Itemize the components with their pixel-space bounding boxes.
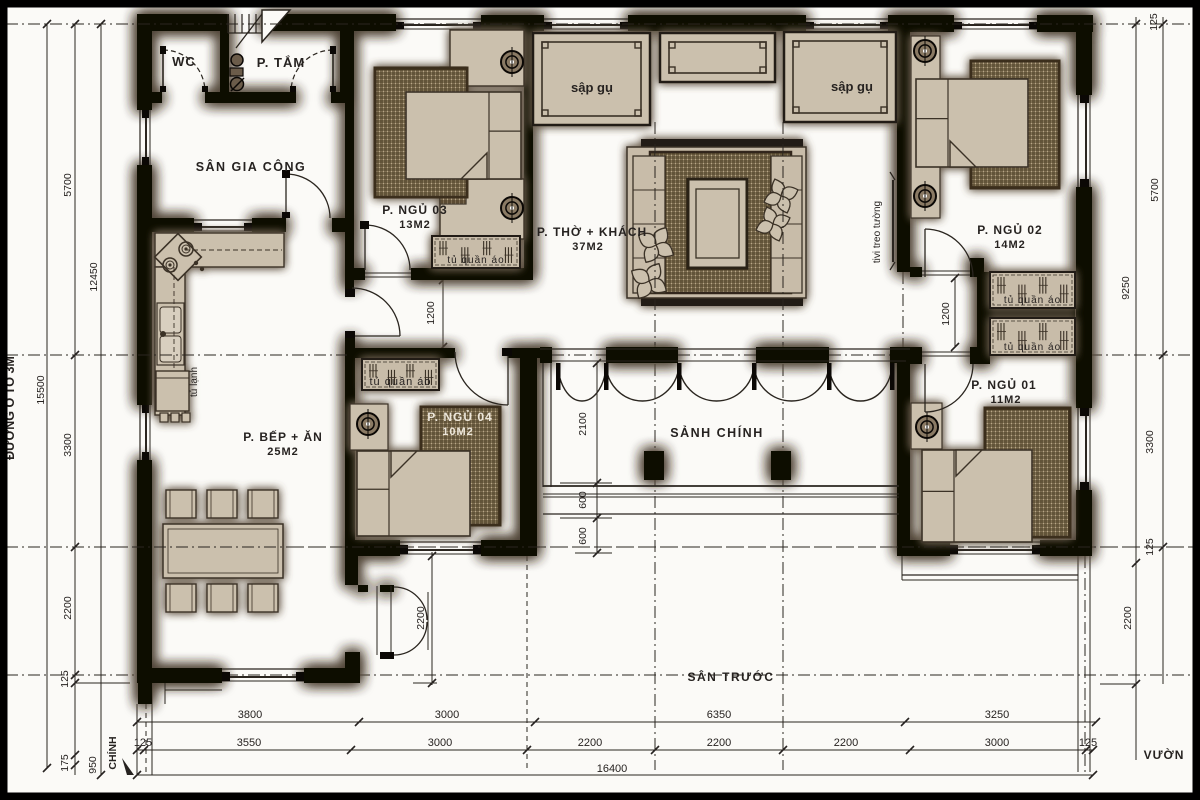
svg-text:3250: 3250 <box>985 709 1009 721</box>
svg-text:5700: 5700 <box>1149 178 1161 202</box>
svg-text:10M2: 10M2 <box>442 426 474 438</box>
svg-text:5700: 5700 <box>62 173 74 197</box>
svg-text:3300: 3300 <box>62 433 74 457</box>
svg-text:tủ quần áo: tủ quần áo <box>370 376 432 388</box>
svg-text:tủ quần áo: tủ quần áo <box>1004 341 1061 353</box>
svg-text:tủ quần áo: tủ quần áo <box>447 254 504 266</box>
svg-text:tủ lạnh: tủ lạnh <box>188 367 200 397</box>
svg-text:11M2: 11M2 <box>991 394 1022 406</box>
svg-text:3550: 3550 <box>237 737 261 749</box>
svg-text:125: 125 <box>59 670 71 688</box>
svg-text:P. NGỦ 01: P. NGỦ 01 <box>971 377 1036 392</box>
svg-text:37M2: 37M2 <box>572 241 604 253</box>
svg-text:2100: 2100 <box>577 412 589 436</box>
svg-text:950: 950 <box>87 756 99 774</box>
svg-text:6350: 6350 <box>707 709 731 721</box>
svg-text:12450: 12450 <box>88 262 100 291</box>
svg-text:25M2: 25M2 <box>267 446 299 458</box>
svg-text:sập gụ: sập gụ <box>831 79 873 94</box>
svg-text:175: 175 <box>59 754 71 772</box>
svg-text:P. BẾP + ĂN: P. BẾP + ĂN <box>243 429 323 444</box>
svg-text:VƯỜN: VƯỜN <box>1144 747 1185 762</box>
svg-text:SÂN TRƯỚC: SÂN TRƯỚC <box>687 669 774 684</box>
svg-text:125: 125 <box>1144 538 1156 556</box>
svg-text:2200: 2200 <box>62 596 74 620</box>
svg-text:3000: 3000 <box>985 737 1009 749</box>
svg-text:15500: 15500 <box>35 375 47 404</box>
svg-text:125: 125 <box>134 737 152 749</box>
svg-text:2200: 2200 <box>1122 606 1134 630</box>
svg-text:16400: 16400 <box>597 763 628 775</box>
svg-text:SÂN GIA CÔNG: SÂN GIA CÔNG <box>196 159 307 174</box>
svg-text:1200: 1200 <box>940 302 952 326</box>
svg-text:125: 125 <box>1148 13 1160 31</box>
svg-text:CHÍNH: CHÍNH <box>106 736 119 769</box>
svg-text:9250: 9250 <box>1120 276 1132 300</box>
svg-text:3000: 3000 <box>428 737 452 749</box>
svg-text:2200: 2200 <box>415 606 427 630</box>
svg-text:P. NGỦ 02: P. NGỦ 02 <box>977 222 1042 237</box>
svg-text:2200: 2200 <box>578 737 602 749</box>
svg-text:2200: 2200 <box>834 737 858 749</box>
svg-text:3000: 3000 <box>435 709 459 721</box>
svg-text:3300: 3300 <box>1144 430 1156 454</box>
svg-text:P. NGỦ 04: P. NGỦ 04 <box>427 409 492 424</box>
svg-text:sập gụ: sập gụ <box>571 80 613 95</box>
svg-text:SẢNH CHÍNH: SẢNH CHÍNH <box>670 425 763 440</box>
svg-text:14M2: 14M2 <box>994 239 1026 251</box>
svg-text:600: 600 <box>577 491 589 509</box>
svg-text:1200: 1200 <box>425 301 437 325</box>
svg-text:P. TẮM: P. TẮM <box>257 55 305 70</box>
svg-text:2200: 2200 <box>707 737 731 749</box>
svg-text:13M2: 13M2 <box>399 219 431 231</box>
svg-text:600: 600 <box>577 527 589 545</box>
svg-text:tivi treo tường: tivi treo tường <box>872 201 883 263</box>
svg-text:P. NGỦ 03: P. NGỦ 03 <box>382 202 447 217</box>
svg-text:tủ quần áo: tủ quần áo <box>1004 294 1061 306</box>
svg-text:WC: WC <box>172 54 196 69</box>
svg-text:3800: 3800 <box>238 709 262 721</box>
svg-text:125: 125 <box>1079 737 1097 749</box>
svg-text:P. THỜ + KHÁCH: P. THỜ + KHÁCH <box>537 224 647 239</box>
